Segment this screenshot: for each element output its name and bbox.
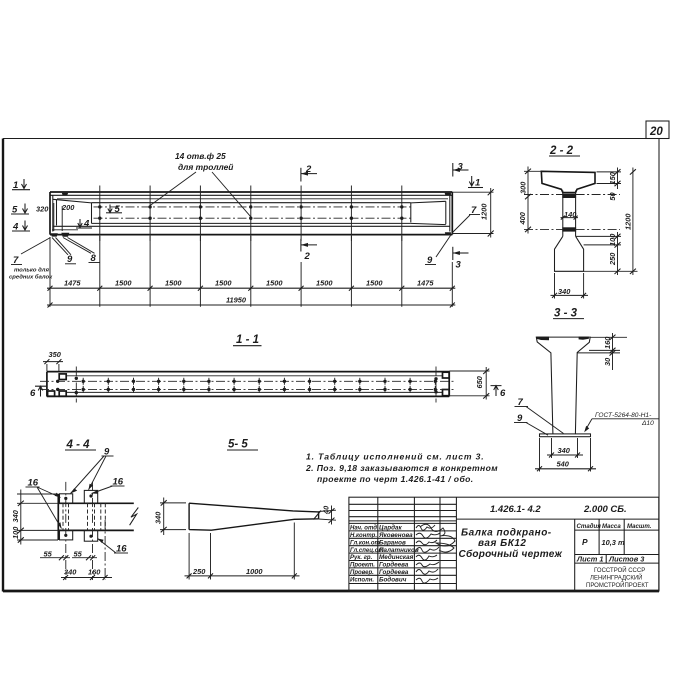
svg-text:340: 340	[558, 287, 571, 296]
svg-text:160: 160	[88, 568, 101, 577]
svg-text:Мединская: Мединская	[379, 553, 414, 561]
svg-text:1500: 1500	[215, 279, 232, 288]
svg-text:1500: 1500	[366, 279, 383, 288]
svg-text:1200: 1200	[480, 203, 489, 220]
svg-text:55: 55	[44, 550, 53, 559]
svg-text:Гордеева: Гордеева	[379, 568, 409, 576]
svg-text:1475: 1475	[417, 279, 434, 288]
svg-text:Провер.: Провер.	[350, 570, 374, 576]
svg-text:1200: 1200	[624, 213, 633, 230]
svg-text:2 - 2: 2 - 2	[549, 145, 574, 157]
svg-text:1500: 1500	[316, 279, 333, 288]
svg-text:для троллей: для троллей	[178, 162, 233, 172]
svg-text:Масса: Масса	[602, 523, 621, 530]
svg-text:50: 50	[608, 191, 617, 200]
svg-text:14 отв.ф 25: 14 отв.ф 25	[175, 151, 226, 161]
svg-text:20: 20	[649, 126, 663, 138]
svg-text:1500: 1500	[266, 279, 283, 288]
svg-text:Сборочный чертеж: Сборочный чертеж	[459, 548, 563, 560]
svg-text:Яковенова: Яковенова	[378, 532, 413, 539]
svg-text:Лист 1: Лист 1	[576, 555, 603, 564]
svg-text:2. Поз. 9,18 заказываются в ко: 2. Поз. 9,18 заказываются в конкретном	[305, 463, 498, 473]
svg-text:Исполн.: Исполн.	[350, 577, 374, 583]
svg-text:3: 3	[456, 260, 462, 271]
svg-text:1500: 1500	[165, 279, 182, 288]
svg-text:30: 30	[603, 357, 612, 366]
svg-text:Листов 3: Листов 3	[608, 555, 645, 564]
svg-text:340: 340	[558, 446, 571, 455]
svg-text:Нач. отд: Нач. отд	[350, 526, 377, 532]
svg-text:3: 3	[458, 162, 464, 173]
svg-text:100: 100	[608, 233, 617, 246]
svg-text:40: 40	[322, 505, 331, 515]
svg-text:1. Таблицу исполнений см. лис: 1. Таблицу исполнений см. лист 3.	[306, 452, 484, 462]
svg-text:проекте по черт 1.426.1-41 / о: проекте по черт 1.426.1-41 / обо.	[317, 474, 474, 484]
svg-text:Гордеева: Гордеева	[379, 561, 409, 569]
svg-text:1500: 1500	[115, 279, 132, 288]
svg-text:350: 350	[49, 350, 62, 359]
svg-text:150: 150	[608, 171, 617, 184]
svg-text:Баранов: Баранов	[379, 539, 406, 546]
svg-text:540: 540	[557, 459, 570, 468]
svg-text:вая БК12: вая БК12	[478, 538, 527, 549]
svg-text:Гл.кон.от: Гл.кон.от	[350, 540, 381, 546]
svg-text:ГОССТРОЙ СССР: ГОССТРОЙ СССР	[594, 566, 645, 574]
svg-text:Р: Р	[582, 537, 588, 547]
svg-text:1000: 1000	[246, 567, 263, 576]
svg-text:5: 5	[115, 204, 121, 215]
svg-text:5- 5: 5- 5	[228, 439, 248, 451]
svg-text:ЛЕНИНГРАДСКИЙ: ЛЕНИНГРАДСКИЙ	[590, 574, 643, 582]
svg-text:1475: 1475	[64, 279, 81, 288]
svg-text:11950: 11950	[226, 296, 247, 305]
svg-text:250: 250	[608, 252, 617, 266]
svg-text:1: 1	[475, 178, 480, 189]
svg-text:1.426.1- 4.2: 1.426.1- 4.2	[490, 504, 541, 515]
svg-text:средних балок: средних балок	[9, 274, 53, 281]
svg-text:Н.контр.: Н.контр.	[350, 533, 377, 539]
svg-text:650: 650	[475, 375, 484, 388]
svg-text:Δ10: Δ10	[641, 420, 654, 427]
svg-text:140: 140	[564, 210, 577, 219]
svg-text:6: 6	[500, 388, 506, 399]
svg-text:320: 320	[36, 205, 49, 214]
svg-text:ПРОМСТРОЙПРОЕКТ: ПРОМСТРОЙПРОЕКТ	[586, 581, 649, 589]
svg-text:Палатников: Палатников	[379, 547, 419, 554]
svg-text:10,3 т: 10,3 т	[602, 538, 625, 547]
svg-text:Бодович: Бодович	[379, 575, 407, 583]
svg-text:6: 6	[30, 388, 36, 399]
svg-text:Цардак: Цардак	[379, 524, 402, 532]
svg-text:300: 300	[519, 181, 528, 194]
svg-text:2.000 СБ.: 2.000 СБ.	[583, 504, 627, 515]
svg-text:1 - 1: 1 - 1	[236, 334, 259, 346]
svg-text:только для: только для	[14, 268, 49, 274]
svg-text:4 - 4: 4 - 4	[66, 439, 91, 451]
svg-text:400: 400	[518, 211, 527, 225]
svg-text:250: 250	[192, 567, 206, 576]
svg-text:Масшт.: Масшт.	[627, 523, 652, 530]
svg-text:2: 2	[304, 251, 311, 262]
svg-text:340: 340	[11, 509, 20, 522]
svg-text:3 - 3: 3 - 3	[554, 308, 578, 320]
svg-text:100: 100	[11, 526, 20, 539]
svg-text:Рук. гр.: Рук. гр.	[350, 555, 373, 561]
svg-text:160: 160	[603, 336, 612, 349]
svg-text:2: 2	[305, 164, 312, 175]
svg-text:Стадия: Стадия	[577, 523, 602, 530]
svg-text:340: 340	[154, 511, 163, 524]
svg-text:200: 200	[61, 203, 75, 212]
svg-text:Проект.: Проект.	[350, 563, 375, 569]
svg-text:340: 340	[64, 568, 77, 577]
svg-text:Балка подкрано-: Балка подкрано-	[461, 528, 552, 539]
svg-text:55: 55	[74, 550, 83, 559]
svg-text:ГОСТ-5264-80-Н1-: ГОСТ-5264-80-Н1-	[595, 412, 652, 419]
